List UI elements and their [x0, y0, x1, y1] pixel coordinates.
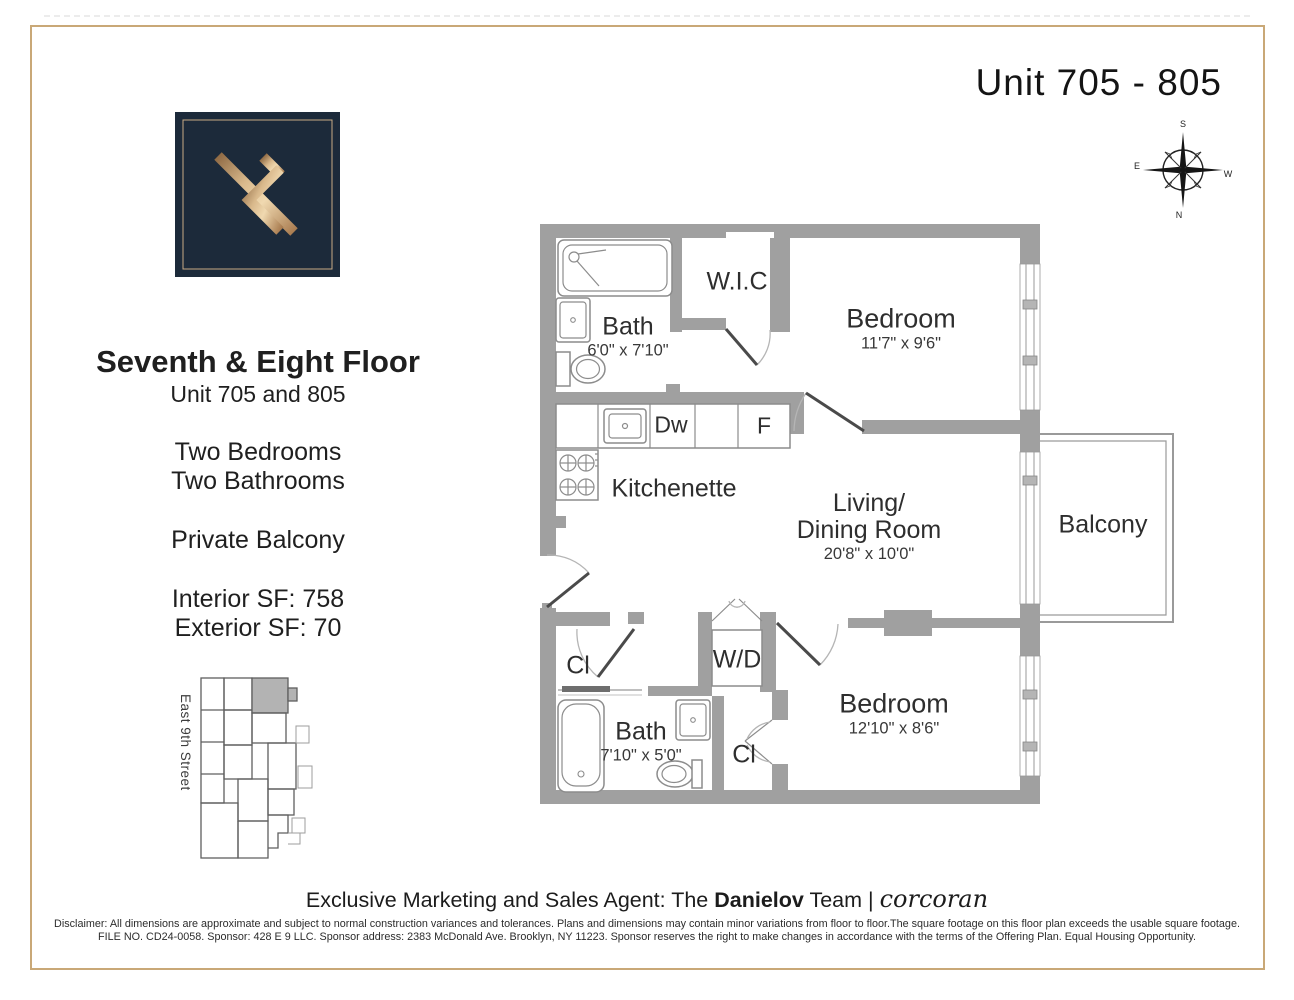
fridge-label: F: [757, 413, 771, 440]
room-kitchenette: Kitchenette: [611, 476, 736, 503]
room-bedroom2-dims: 12'10" x 8'6": [839, 720, 949, 739]
disclaimer-line2: FILE NO. CD24-0058. Sponsor: 428 E 9 LLC…: [36, 931, 1258, 944]
disclaimer-line1: Disclaimer: All dimensions are approxima…: [36, 918, 1258, 931]
room-kitchenette-label: Kitchenette: [611, 476, 736, 503]
room-living-line2: Dining Room: [797, 517, 942, 544]
agent-suffix: Team |: [804, 888, 880, 912]
room-bedroom2-label: Bedroom: [839, 689, 949, 718]
agent-prefix: Exclusive Marketing and Sales Agent: The: [306, 888, 714, 912]
appliance-fridge: F: [757, 413, 771, 440]
room-closet1: Cl: [566, 653, 590, 680]
brand-logo-text: corcoran: [880, 885, 989, 913]
agent-team-name: Danielov: [714, 888, 804, 912]
room-living-dims: 20'8" x 10'0": [797, 545, 942, 564]
room-balcony-label: Balcony: [1059, 512, 1148, 539]
agent-line: Exclusive Marketing and Sales Agent: The…: [0, 885, 1294, 913]
room-bath1-label: Bath: [587, 314, 668, 341]
room-bath2: Bath 7'10" x 5'0": [600, 719, 681, 766]
room-wic-label: W.I.C: [706, 269, 767, 296]
room-living: Living/ Dining Room 20'8" x 10'0": [797, 490, 942, 564]
room-bath1: Bath 6'0" x 7'10": [587, 314, 668, 361]
room-closet2-label: Cl: [732, 742, 756, 769]
room-bedroom1-dims: 11'7" x 9'6": [846, 335, 956, 354]
disclaimer: Disclaimer: All dimensions are approxima…: [36, 918, 1258, 943]
dishwasher-label: Dw: [654, 412, 687, 439]
appliance-washer-dryer: W/D: [713, 647, 762, 674]
room-living-line1: Living/: [797, 490, 942, 517]
room-bedroom2: Bedroom 12'10" x 8'6": [839, 689, 949, 738]
room-closet2: Cl: [732, 742, 756, 769]
room-wic: W.I.C: [706, 269, 767, 296]
appliance-dishwasher: Dw: [654, 412, 687, 439]
room-balcony: Balcony: [1059, 512, 1148, 539]
floor-plan-sheet: Unit 705 - 805 S N E W: [0, 0, 1294, 1000]
room-bath1-dims: 6'0" x 7'10": [587, 342, 668, 361]
room-bedroom1-label: Bedroom: [846, 304, 956, 333]
room-bath2-dims: 7'10" x 5'0": [600, 747, 681, 766]
room-bath2-label: Bath: [600, 719, 681, 746]
room-bedroom1: Bedroom 11'7" x 9'6": [846, 304, 956, 353]
room-closet1-label: Cl: [566, 653, 590, 680]
washer-dryer-label: W/D: [713, 647, 762, 674]
